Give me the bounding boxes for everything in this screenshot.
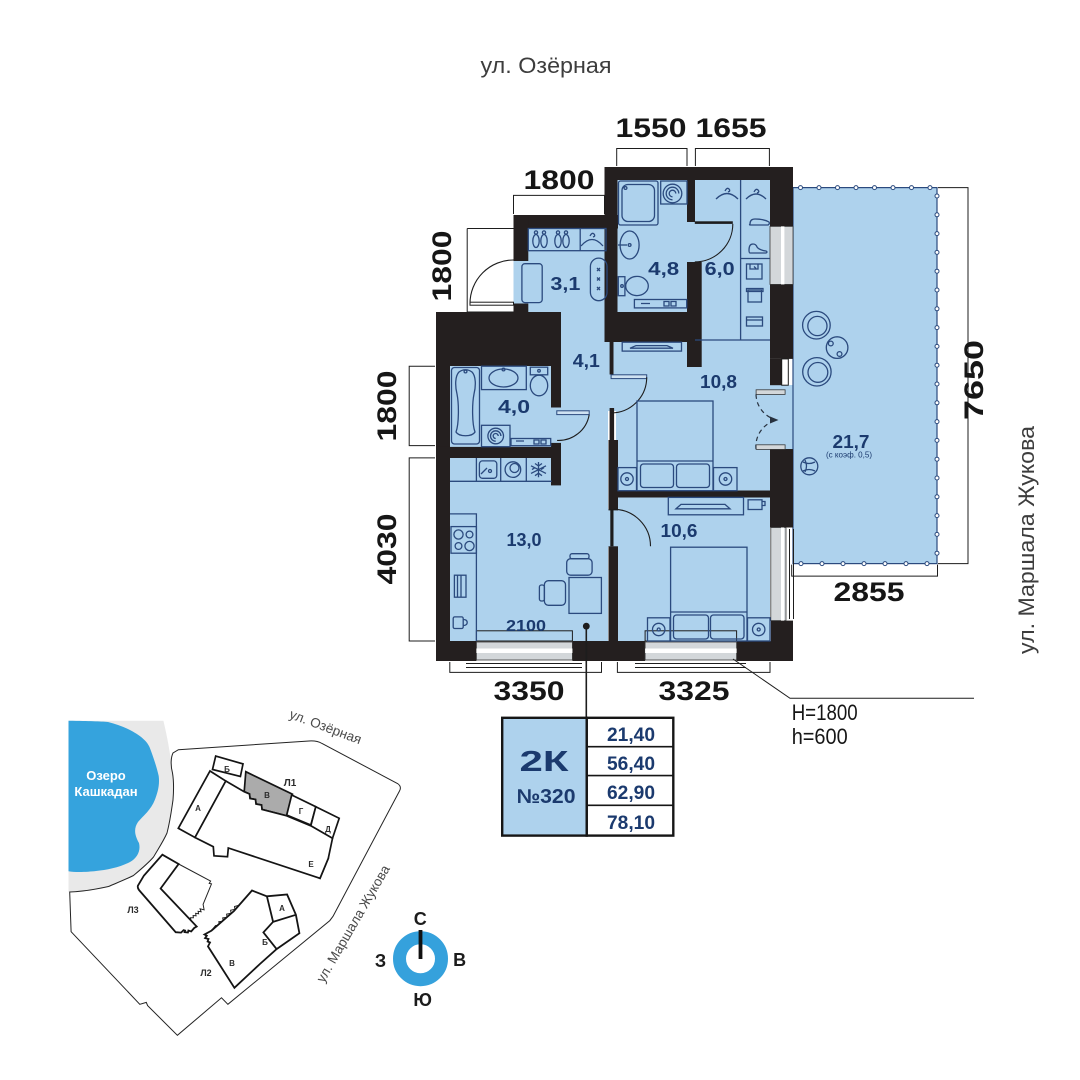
svg-text:2100: 2100 [506, 618, 546, 635]
svg-text:Л3: Л3 [127, 905, 138, 915]
svg-text:А: А [195, 804, 201, 813]
svg-text:ул. Маршала Жукова: ул. Маршала Жукова [1014, 425, 1039, 654]
svg-text:2К: 2К [520, 746, 569, 778]
svg-text:В: В [264, 791, 270, 800]
svg-text:2855: 2855 [834, 577, 905, 607]
svg-text:3325: 3325 [659, 676, 730, 706]
svg-text:10,8: 10,8 [700, 372, 737, 392]
svg-text:Ю: Ю [413, 990, 432, 1010]
svg-text:ул. Озёрная: ул. Озёрная [481, 53, 612, 78]
svg-text:10,6: 10,6 [661, 521, 698, 541]
svg-text:3,1: 3,1 [550, 274, 580, 294]
svg-text:13,0: 13,0 [507, 530, 542, 550]
svg-text:4,8: 4,8 [648, 259, 679, 279]
svg-text:№320: №320 [517, 786, 576, 808]
svg-text:1655: 1655 [696, 113, 767, 143]
svg-text:4030: 4030 [372, 514, 402, 585]
svg-text:21,7: 21,7 [833, 432, 870, 452]
svg-text:З: З [375, 951, 386, 971]
svg-text:С: С [414, 909, 427, 929]
svg-text:Л1: Л1 [284, 778, 297, 789]
svg-text:В: В [229, 959, 235, 968]
svg-text:Д: Д [325, 825, 331, 834]
svg-text:1800: 1800 [372, 371, 402, 442]
svg-text:56,40: 56,40 [607, 754, 655, 775]
svg-text:62,90: 62,90 [607, 783, 655, 804]
svg-text:1800: 1800 [524, 165, 595, 195]
svg-text:В: В [453, 950, 466, 970]
svg-text:7650: 7650 [959, 340, 989, 420]
svg-text:Кашкадан: Кашкадан [74, 784, 137, 799]
svg-text:Б: Б [224, 765, 230, 774]
svg-text:Озеро: Озеро [86, 768, 126, 783]
svg-text:H=1800: H=1800 [792, 700, 858, 725]
svg-text:(с коэф. 0,5): (с коэф. 0,5) [826, 451, 872, 460]
svg-text:4,1: 4,1 [573, 351, 600, 371]
svg-text:ул. Озёрная: ул. Озёрная [287, 706, 363, 747]
svg-text:21,40: 21,40 [607, 725, 655, 746]
svg-text:1800: 1800 [427, 231, 457, 302]
svg-text:Л2: Л2 [200, 968, 211, 978]
svg-text:1550: 1550 [616, 113, 687, 143]
svg-text:4,0: 4,0 [498, 397, 530, 417]
svg-text:6,0: 6,0 [705, 259, 735, 279]
svg-text:Е: Е [308, 860, 314, 869]
svg-text:3350: 3350 [494, 676, 565, 706]
svg-text:А: А [279, 904, 285, 913]
svg-text:78,10: 78,10 [607, 813, 655, 834]
svg-text:Б: Б [262, 938, 268, 947]
svg-text:Г: Г [299, 807, 304, 816]
svg-text:h=600: h=600 [792, 724, 848, 749]
